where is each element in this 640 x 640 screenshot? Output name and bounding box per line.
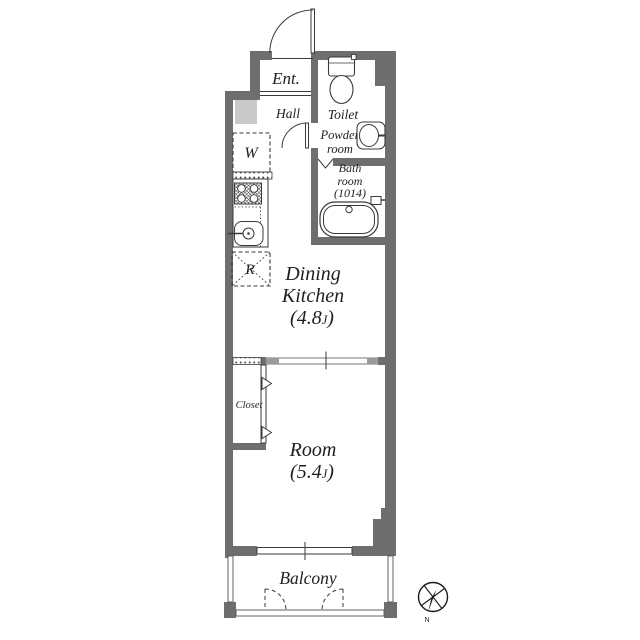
- balcony-post-left: [224, 602, 236, 618]
- dining-kitchen-label-line1: Dining: [284, 263, 341, 285]
- right-wall: [385, 51, 396, 556]
- washer-label: W: [244, 145, 259, 162]
- hall-toilet-wall-upper: [311, 51, 318, 123]
- bathroom-label-line1: Bath: [339, 161, 362, 175]
- entrance-door-leaf: [311, 9, 315, 53]
- closet-bottom-wall: [233, 443, 266, 450]
- divider-hatch-strip: [233, 358, 261, 365]
- powder-sink-basin: [360, 125, 379, 147]
- bathroom-label-line3: (1014): [334, 186, 366, 200]
- balcony-post-right: [384, 602, 397, 618]
- balcony-rail-right: [388, 556, 393, 602]
- balcony-rail-left: [228, 556, 233, 602]
- compass-north-label: N: [424, 617, 429, 624]
- hall-door-leaf: [306, 123, 309, 148]
- divider-stub: [261, 357, 266, 365]
- kitchen-back-hatch-strip: [233, 172, 272, 179]
- powder-room-label-line1: Powder: [320, 128, 360, 142]
- dk-size-close: ): [326, 307, 334, 329]
- entrance-label: Ent.: [271, 69, 300, 88]
- refrigerator-label: R: [244, 262, 254, 278]
- bottom-right-notch: [373, 519, 385, 556]
- dk-size-open: (4.8: [290, 307, 322, 329]
- stove-burner-2: [250, 185, 258, 193]
- closet-label: Closet: [236, 400, 264, 411]
- room-size-close: ): [326, 461, 334, 483]
- toilet-tank-icon: [329, 57, 355, 76]
- floor-plan: Ent. Hall Toilet Powder room Bath room (…: [0, 0, 640, 640]
- room-size-label: (5.4J): [290, 461, 334, 483]
- hall-bath-wall-lower: [311, 148, 318, 245]
- toilet-label: Toilet: [328, 107, 360, 122]
- toilet-flush-button: [352, 55, 357, 60]
- bathtub-faucet: [371, 197, 381, 205]
- stove-burner-3: [238, 195, 246, 203]
- kitchen-faucet-dot: [247, 232, 250, 235]
- stove-burner-1: [238, 185, 246, 193]
- sliding-door-cap-right: [367, 358, 378, 364]
- balcony-label: Balcony: [279, 568, 337, 588]
- balcony-rail-bottom: [236, 610, 384, 616]
- stove-burner-4: [250, 195, 258, 203]
- pipe-shaft: [235, 100, 257, 124]
- room-size-open: (5.4: [290, 461, 322, 483]
- dining-kitchen-label-line2: Kitchen: [281, 285, 344, 307]
- divider-right-segment: [378, 357, 385, 365]
- entrance-left-wall: [250, 51, 260, 92]
- bath-bottom-wall: [311, 237, 396, 245]
- left-wall: [225, 91, 233, 558]
- room-label: Room: [289, 439, 337, 461]
- room-bottom-wall-left: [233, 546, 257, 556]
- bottom-right-notch-step: [381, 508, 385, 519]
- dining-kitchen-size-label: (4.8J): [290, 307, 334, 329]
- toilet-bowl-icon: [330, 76, 353, 104]
- bathtub-drain: [346, 206, 352, 212]
- sliding-door-track: [266, 358, 378, 364]
- hall-label: Hall: [275, 106, 300, 121]
- powder-room-label-line2: room: [327, 142, 353, 156]
- sliding-door-cap-left: [266, 358, 279, 364]
